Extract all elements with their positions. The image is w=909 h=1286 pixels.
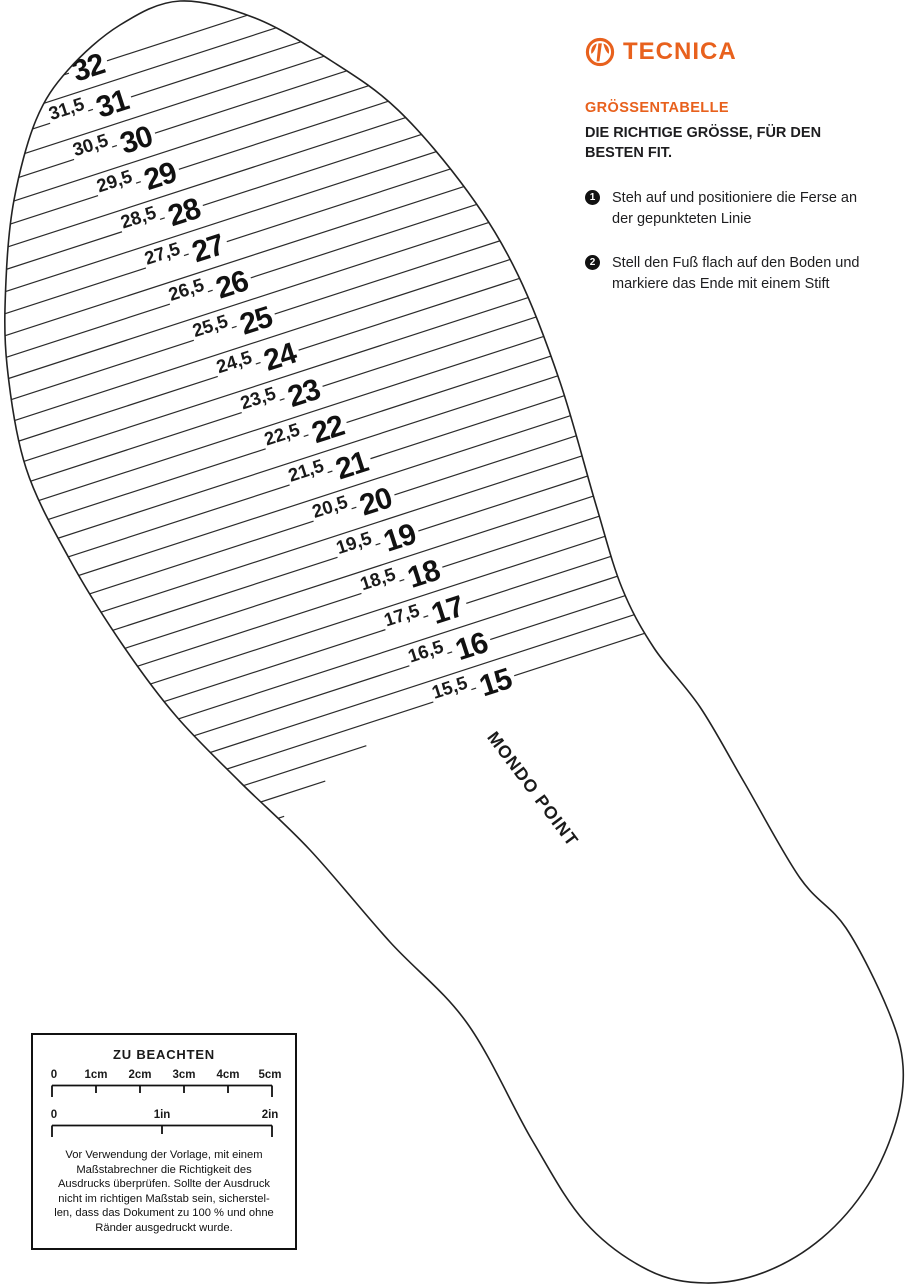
cm-tick-label-4: 4cm <box>216 1069 239 1081</box>
brand-logo: TECNICA <box>585 36 877 68</box>
half-size-label: 25,5 <box>190 310 231 341</box>
step-number-badge: 2 <box>585 255 600 270</box>
size-line <box>0 816 284 994</box>
half-size-label: 28,5 <box>118 201 159 232</box>
cm-tick-label-3: 3cm <box>172 1069 195 1081</box>
brand-wordmark: TECNICA <box>623 38 737 66</box>
scale-check-box: ZU BEACHTEN 01cm2cm3cm4cm5cm 01in2in Vor… <box>31 1033 297 1250</box>
size-line <box>0 781 325 974</box>
half-size-label: 29,5 <box>94 165 135 196</box>
instruction-step-1: 1Steh auf und positioniere die Ferse an … <box>585 188 860 230</box>
step-text: Steh auf und positioniere die Ferse an d… <box>612 188 860 230</box>
inch-ruler <box>33 1124 294 1139</box>
half-size-label: 19,5 <box>333 527 374 558</box>
half-size-label: 18,5 <box>357 563 398 594</box>
size-line <box>0 349 909 775</box>
tecnica-logo-icon <box>585 37 615 67</box>
inch-tick-label-1: 1in <box>154 1109 171 1121</box>
inch-tick-label-0: 0 <box>51 1109 57 1121</box>
inch-tick-label-2: 2in <box>262 1109 279 1121</box>
inch-ruler-labels: 01in2in <box>33 1109 295 1123</box>
instruction-steps: 1Steh auf und positioniere die Ferse an … <box>585 188 877 295</box>
size-line <box>0 369 909 795</box>
half-size-label: 31,5 <box>46 93 87 124</box>
size-line <box>0 746 366 955</box>
instruction-step-2: 2Stell den Fuß flach auf den Boden und m… <box>585 253 860 295</box>
cm-tick-label-2: 2cm <box>128 1069 151 1081</box>
cm-ruler <box>33 1084 294 1099</box>
half-size-label: 16,5 <box>405 636 446 667</box>
size-line <box>0 309 909 735</box>
notice-title: ZU BEACHTEN <box>33 1047 295 1062</box>
size-line <box>0 269 909 695</box>
size-line <box>0 508 909 934</box>
step-number-badge: 1 <box>585 190 600 205</box>
half-size-label: 21,5 <box>285 455 326 486</box>
half-size-label: 22,5 <box>262 418 303 449</box>
size-line <box>0 488 909 914</box>
notice-body-text: Vor Verwendung der Vorlage, mit einem Ma… <box>33 1148 295 1235</box>
cm-tick-label-5: 5cm <box>258 1069 281 1081</box>
half-size-label: 20,5 <box>309 491 350 522</box>
half-size-label: 15,5 <box>429 672 470 703</box>
page-subtitle: DIE RICHTIGE GRÖSSE, FÜR DEN BESTEN FIT. <box>585 123 840 164</box>
half-size-label: 17,5 <box>381 599 422 630</box>
cm-ruler-labels: 01cm2cm3cm4cm5cm <box>33 1069 295 1083</box>
cm-tick-label-0: 0 <box>51 1069 57 1081</box>
half-size-label: 26,5 <box>166 274 207 305</box>
step-text: Stell den Fuß flach auf den Boden und ma… <box>612 253 860 295</box>
mondo-point-label: MONDO POINT <box>483 728 582 851</box>
info-panel: TECNICA GRÖSSENTABELLE DIE RICHTIGE GRÖS… <box>585 36 877 318</box>
cm-tick-label-1: 1cm <box>84 1069 107 1081</box>
half-size-label: 27,5 <box>142 238 183 269</box>
size-chart-page: { "brand": { "name": "TECNICA", "accent_… <box>0 0 909 1286</box>
half-size-label: 24,5 <box>214 346 255 377</box>
half-size-label: 23,5 <box>238 382 279 413</box>
page-title: GRÖSSENTABELLE <box>585 100 877 116</box>
half-size-label: 30,5 <box>70 129 111 160</box>
